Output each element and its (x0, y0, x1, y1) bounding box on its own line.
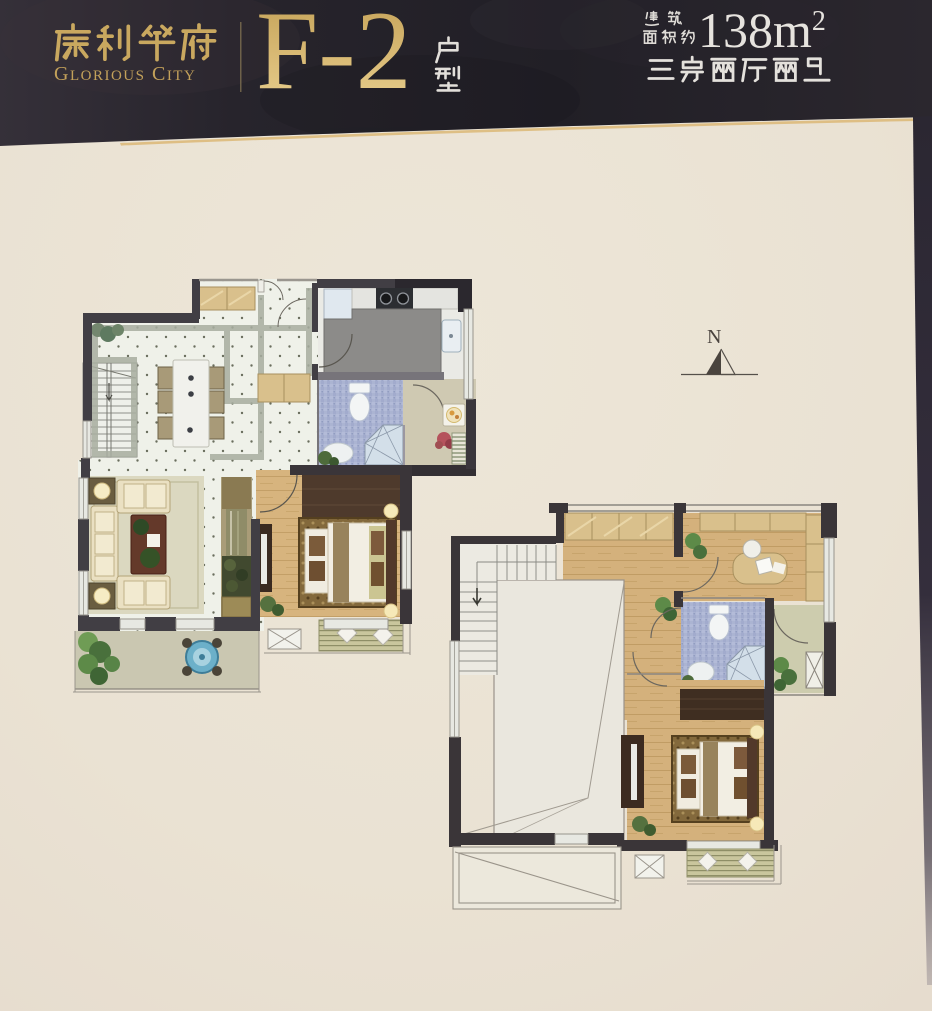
svg-text:F-2: F-2 (256, 0, 412, 113)
svg-text:N: N (707, 326, 721, 348)
svg-text:138m2: 138m2 (698, 2, 826, 58)
